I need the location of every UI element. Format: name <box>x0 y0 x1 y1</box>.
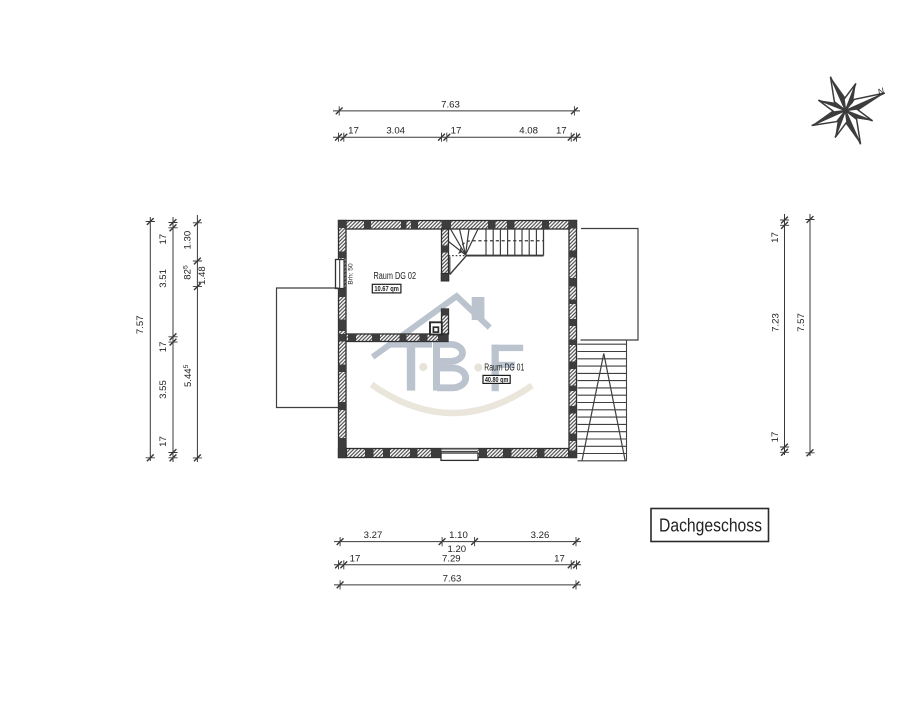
svg-text:Dachgeschoss: Dachgeschoss <box>659 516 762 536</box>
svg-text:1.10: 1.10 <box>449 530 468 541</box>
svg-text:17: 17 <box>158 234 169 245</box>
svg-text:7.29: 7.29 <box>442 553 461 564</box>
svg-text:17: 17 <box>770 232 781 243</box>
svg-text:Raum DG 01: Raum DG 01 <box>484 362 524 373</box>
svg-text:17: 17 <box>770 432 781 443</box>
svg-text:40.80 qm: 40.80 qm <box>485 377 509 384</box>
svg-text:7.23: 7.23 <box>770 313 781 332</box>
svg-text:3.26: 3.26 <box>531 530 550 541</box>
svg-text:3.51: 3.51 <box>158 269 169 288</box>
svg-text:Raum DG 02: Raum DG 02 <box>374 271 417 282</box>
svg-text:1.30: 1.30 <box>182 231 193 250</box>
svg-text:17: 17 <box>158 436 169 447</box>
svg-text:Brh: 50: Brh: 50 <box>348 263 355 285</box>
svg-text:7.57: 7.57 <box>135 315 146 334</box>
svg-text:17: 17 <box>451 126 462 137</box>
svg-text:17: 17 <box>556 126 567 137</box>
svg-text:10.67 qm: 10.67 qm <box>374 286 399 293</box>
svg-text:1.48: 1.48 <box>197 266 208 285</box>
svg-text:17: 17 <box>158 342 169 353</box>
svg-text:3.27: 3.27 <box>364 530 383 541</box>
svg-text:4.08: 4.08 <box>519 126 538 137</box>
svg-text:17: 17 <box>348 126 359 137</box>
svg-text:17: 17 <box>350 553 361 564</box>
svg-text:7.63: 7.63 <box>443 573 462 584</box>
svg-text:3.55: 3.55 <box>158 380 169 399</box>
svg-text:7.63: 7.63 <box>441 99 460 110</box>
svg-text:17: 17 <box>554 553 565 564</box>
svg-text:7.57: 7.57 <box>796 313 807 332</box>
svg-text:3.04: 3.04 <box>386 126 405 137</box>
